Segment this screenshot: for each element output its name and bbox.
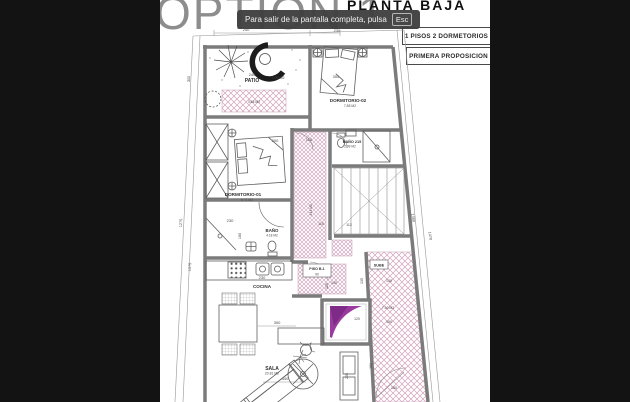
dim-label: 230 xyxy=(227,218,234,223)
site-dim-label: 1470 xyxy=(428,231,433,240)
room-label-bano-2: BAÑO 215 xyxy=(343,139,362,144)
door-arc-icon xyxy=(259,202,284,227)
area-label: 4.18 M2 xyxy=(266,234,278,238)
dim-label: 150 xyxy=(386,320,392,324)
dim-label: 305 xyxy=(333,74,340,79)
wardrobe-icon xyxy=(206,124,228,198)
room-label-dormitorio-02: DORMITORIO-02 xyxy=(330,98,367,103)
room-label-patio: PATIO xyxy=(245,78,260,84)
esc-key-hint: Esc xyxy=(392,13,413,26)
dim-label: 112 xyxy=(346,223,352,227)
dim-label: 200 xyxy=(272,138,279,143)
site-dim-label: 1275 xyxy=(179,219,183,228)
site-dim-label: 300 xyxy=(187,76,191,83)
kitchen-sink-icon xyxy=(256,263,284,275)
room-label-piso-b1: PISO B-1 xyxy=(309,267,324,271)
dim-label: 160 xyxy=(238,233,242,239)
sala-furniture xyxy=(219,293,324,402)
area-label: 7.85 M2 xyxy=(344,104,356,108)
dim-label: 230 xyxy=(259,275,266,280)
bed-icon xyxy=(234,136,285,185)
staircase xyxy=(334,168,404,234)
dim-label: 240 xyxy=(249,72,256,77)
lamp-icon xyxy=(314,49,367,57)
stove-icon xyxy=(228,262,246,278)
dim-label: 130 xyxy=(386,279,392,283)
floor-plan-drawing: 240 230 240 PATIO 7.09 M2 3.64 M2 305 DO… xyxy=(160,0,490,402)
stairs-sube-label: SUBE xyxy=(374,264,385,268)
toilet-icon xyxy=(268,241,276,251)
area-label: 7.30 M2 xyxy=(382,306,394,310)
cocina-furniture xyxy=(206,261,292,280)
left-letterbox xyxy=(0,0,160,402)
dim-label: 160 xyxy=(369,363,374,369)
desk-icon xyxy=(278,328,324,356)
dim-label: 115 xyxy=(318,222,324,226)
hall-cabinet xyxy=(340,352,358,400)
dim-label: 110 xyxy=(306,137,313,142)
toast-message: Para salir de la pantalla completa, puls… xyxy=(245,15,387,24)
watermark-logo xyxy=(326,304,366,340)
bed-icon xyxy=(320,47,358,96)
site-dim-label: 1075 xyxy=(188,263,192,272)
shrub-icon xyxy=(205,91,221,107)
ceiling-fan-icon xyxy=(288,359,318,389)
dim-label: 440 xyxy=(282,376,289,381)
dim-label: 350 xyxy=(274,320,281,325)
plant-icon xyxy=(293,350,307,364)
area-label: 7.09 M2 xyxy=(272,76,285,80)
dim-label: 205 xyxy=(345,373,349,379)
dim-label: 120 xyxy=(354,317,360,321)
right-letterbox xyxy=(490,0,630,402)
dim-label: 140 xyxy=(331,281,337,285)
room-label-bano-1: BAÑO xyxy=(266,228,280,233)
room-label-cocina: COCINA xyxy=(253,284,272,289)
tree-icon xyxy=(214,45,248,78)
dim-label: 180 xyxy=(391,386,397,390)
room-label-dormitorio-01: DORMITORIO-01 xyxy=(225,192,262,197)
fullscreen-exit-toast: Para salir de la pantalla completa, puls… xyxy=(237,10,420,29)
area-label: 4.14 M2 xyxy=(309,204,313,216)
fullscreen-image-viewer: OPTION 1 PLANTA BAJA Para salir de la pa… xyxy=(0,0,630,402)
dim-label: 125 xyxy=(325,283,329,289)
area-label: 6.71 M2 xyxy=(241,198,253,202)
area-label: 20.81 M2 xyxy=(265,372,279,376)
dining-table-icon xyxy=(219,293,257,355)
area-label: 3.64 M2 xyxy=(248,100,260,104)
spiral-tree-icon xyxy=(252,45,283,79)
shower-icon xyxy=(363,131,390,162)
dim-label: 90 xyxy=(315,273,319,277)
dormitorio-02-furniture xyxy=(313,47,367,96)
dim-label: 135 xyxy=(360,278,364,284)
area-label: 2.09 M2 xyxy=(344,145,356,149)
